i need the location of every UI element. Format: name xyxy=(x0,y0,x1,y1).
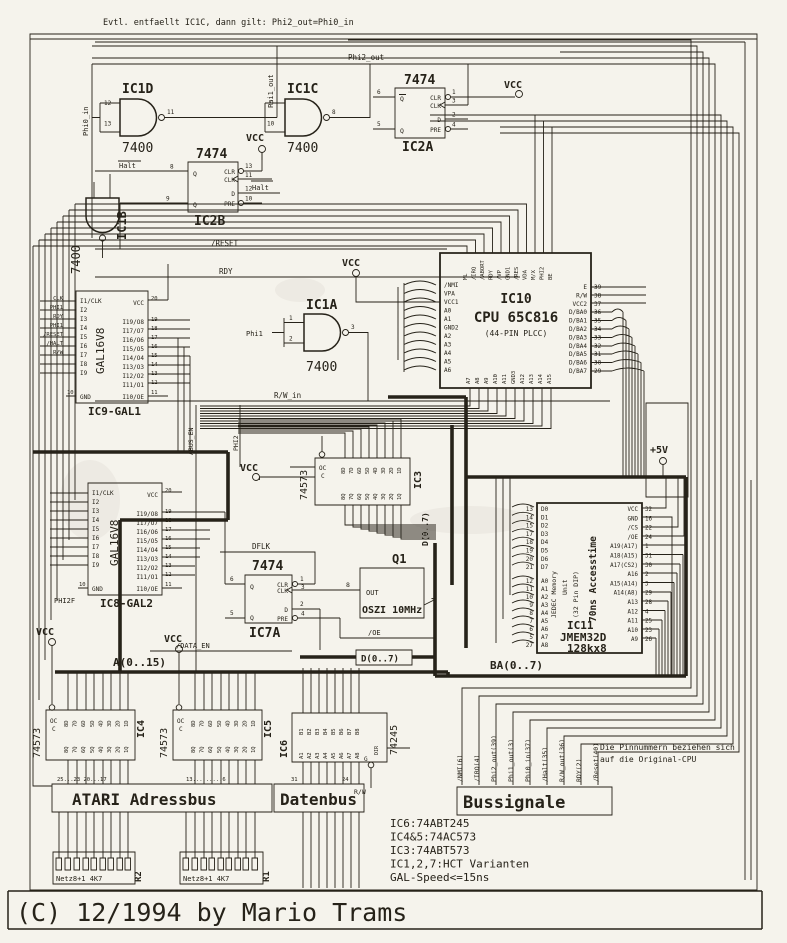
bussignale-signal-labels-5: /Halt(35) xyxy=(541,747,549,782)
gal9-left-pin-labels-2: I3 xyxy=(80,316,88,323)
cpu-bottom-pin-labels-0: A7 xyxy=(466,377,472,384)
mem-right-pin-nums-12: 25 xyxy=(645,619,652,625)
gal-oe: I10/OE xyxy=(136,586,158,593)
mem-a-pin-labels-7: A7 xyxy=(541,634,549,641)
vcc-terminal xyxy=(259,146,266,153)
gal9-right-pin-nums: 1918171615141312 xyxy=(151,317,158,386)
ic5-q-pins-3: 5Q xyxy=(217,746,223,753)
pin-num: 11 xyxy=(245,172,253,179)
cpu-right-pin-labels-3: D/BA0 xyxy=(569,309,587,316)
resistor-network-r2: Netz8+1 4K7 R2 xyxy=(53,852,144,884)
ic4-q-pins: 8Q7Q6Q5Q4Q3Q2Q1Q xyxy=(64,746,130,753)
cpu-right-pin-labels-9: D/BA6 xyxy=(569,360,587,367)
gal9-right-pin-labels-4: I14/O4 xyxy=(122,355,144,362)
ic3-q-pins-5: 3Q xyxy=(381,493,387,500)
mem-d-pin-labels-3: D3 xyxy=(541,531,549,538)
mem-right-pin-nums-4: 1 xyxy=(645,544,649,550)
ff-part: 7474 xyxy=(404,73,435,88)
gal8-right-pin-labels-1: I17/O7 xyxy=(136,520,158,527)
mem-right-pin-labels-6: A17(CS2) xyxy=(610,563,638,569)
gal9-input-signal-labels-2: RDY xyxy=(53,314,64,320)
latch-name: IC4 xyxy=(136,720,147,738)
latch-oc: OC xyxy=(177,718,185,725)
signal-reset: /RESET xyxy=(211,239,239,248)
mem-right-pin-nums-14: 26 xyxy=(645,637,652,643)
mem-right-pin-nums-2: 22 xyxy=(645,526,652,532)
ic6-b-pins-6: B7 xyxy=(347,728,353,735)
cpu-left-pin-labels-2: VCC1 xyxy=(444,299,459,306)
mem-right-pin-labels-14: A9 xyxy=(631,637,638,643)
cpu-name: IC10 xyxy=(500,292,531,307)
datenbus-pin-num-r: 24 xyxy=(342,777,349,783)
mem-d-pin-nums-5: 19 xyxy=(526,548,534,555)
gal8-right-pin-nums-6: 13 xyxy=(165,563,172,569)
cpu-bottom-pin-labels-8: A14 xyxy=(538,373,544,384)
mem-d-pin-nums-7: 21 xyxy=(526,564,534,571)
ic4-d-pins-0: 8D xyxy=(64,720,70,727)
mem-a-pin-labels-6: A6 xyxy=(541,626,549,633)
ic4-d-pins-2: 6D xyxy=(81,720,87,727)
signal-phi0-in: Phi0_in xyxy=(82,106,90,136)
cpu-left-pin-labels-4: A1 xyxy=(444,316,452,323)
signal-phi2: PHI2 xyxy=(232,435,240,451)
cpu-top-pin-labels-0: ML xyxy=(463,273,469,280)
ff-d-label: D xyxy=(437,117,441,124)
clr-bubble xyxy=(446,95,451,100)
wire-cpu-left-hops xyxy=(398,281,436,372)
mem-right-pin-nums-9: 29 xyxy=(645,591,652,597)
mem-a-pin-labels: A0A1A2A3A4A5A6A7A8 xyxy=(541,578,549,649)
adressbus-pin-nums2: 13.........6 xyxy=(186,777,226,783)
gal-vcc: VCC xyxy=(133,300,144,307)
ic4-q-pins-7: 1Q xyxy=(124,746,130,753)
cpu-left-pin-labels-3: A0 xyxy=(444,308,452,315)
ic4-q-pins-4: 4Q xyxy=(98,746,104,753)
ic6-a-pins-3: A4 xyxy=(323,752,329,759)
schematic-canvas: (C) 12/1994 by Mario Trams Evtl. entfael… xyxy=(0,0,787,943)
pin-num: 8 xyxy=(346,581,350,589)
rnet-elements xyxy=(183,858,258,870)
mem-d-pin-labels-4: D4 xyxy=(541,539,549,546)
gate-name: IC1C xyxy=(287,82,318,97)
bussignale-signal-labels-7: RDY(2) xyxy=(575,759,583,782)
bussignale-signal-labels-4: Phi0_in(37) xyxy=(524,739,532,782)
cpu-right-pin-labels-7: D/BA4 xyxy=(569,343,587,350)
cpu-right-pin-nums-0: 39 xyxy=(594,284,602,291)
adressbus-pin-nums: 25...23 20...17 xyxy=(57,777,107,783)
cpu-right-pin-nums-4: 35 xyxy=(594,318,602,325)
rnet-name: R1 xyxy=(262,871,272,882)
gal8-right-pin-nums-0: 19 xyxy=(165,509,172,515)
wire-left-bundle xyxy=(33,204,75,786)
ff-clk-label: CLK xyxy=(277,588,288,595)
gal8-right-pin-nums-3: 16 xyxy=(165,536,172,542)
cpu-right-pin-nums-1: 38 xyxy=(594,292,602,299)
gal8-right-pin-labels-4: I14/O4 xyxy=(136,547,158,554)
nand-gate-symbol xyxy=(120,99,157,136)
ic4-q-pins-1: 7Q xyxy=(73,746,79,753)
cpu-top-pin-labels-6: /RES xyxy=(514,267,520,280)
ic4-d-pins-7: 1D xyxy=(124,720,130,727)
mem-d-pin-labels: D0D1D2D3D4D5D6D7 xyxy=(541,506,549,571)
gate-part: 7400 xyxy=(122,141,153,156)
gate-part: 7400 xyxy=(69,245,83,274)
mem-desc-jedec: JEDEC Memory xyxy=(550,571,558,618)
gal-ic9: I1/CLKI2I3I4I5I6I7I8I9 I19/O8I17/O7I16/O… xyxy=(43,291,158,418)
gate-ic1a: IC1A 7400 1 2 3 Phi1 xyxy=(246,298,355,375)
part-notes-4: GAL-Speed<=15ns xyxy=(390,871,489,884)
wire-ic3 xyxy=(238,419,436,539)
gal9-left-pin-labels-3: I4 xyxy=(80,325,88,332)
latch-ic4: OC C 8D7D6D5D4D3D2D1D 8Q7Q6Q5Q4Q3Q2Q1Q 7… xyxy=(32,705,147,760)
gal8-right-pin-nums-5: 14 xyxy=(165,554,172,560)
ic5-q-pins-5: 3Q xyxy=(234,746,240,753)
bussignale-signal-labels-3: Phi1_out(3) xyxy=(507,739,515,782)
pin-number-note-1: auf die Original-CPU xyxy=(600,755,697,764)
ic5-d-pins-4: 4D xyxy=(225,720,231,727)
gal8-right-pin-labels-6: I12/O2 xyxy=(136,565,158,572)
signal-phi2f: PHI2F xyxy=(54,597,75,605)
gal9-right-pin-nums-2: 17 xyxy=(151,335,158,341)
ic3-d-pins-2: 6D xyxy=(357,467,363,474)
cpu-top-pin-labels: ML/IRQ/ABORTRDY/VPGND1/RESVDAM/XPHI2BE xyxy=(463,259,554,280)
gal9-left-pin-labels-8: I9 xyxy=(80,370,88,377)
ic5-d-pins-3: 5D xyxy=(217,720,223,727)
mem-d-pin-nums-4: 18 xyxy=(526,539,534,546)
cpu-bottom-pin-labels-9: A15 xyxy=(547,374,553,384)
ic5-q-pins-4: 4Q xyxy=(225,746,231,753)
ic6-a-pins-5: A6 xyxy=(339,752,345,759)
oc-bubble xyxy=(319,452,325,458)
gal-vcc: VCC xyxy=(147,492,158,499)
ic4-d-pins-3: 5D xyxy=(90,720,96,727)
ff-pre-label: PRE xyxy=(430,127,441,134)
gal8-right-pin-labels-0: I19/O8 xyxy=(136,511,158,518)
gal8-left-pin-labels-4: I5 xyxy=(92,526,100,533)
pin-num: 10 xyxy=(245,196,253,203)
supply-box: +5V xyxy=(646,403,688,497)
gal9-right-pin-nums-3: 16 xyxy=(151,344,158,350)
gate-ic1d: IC1D 7400 12 13 11 xyxy=(104,82,175,156)
signal-phi1-out: Phi1_out xyxy=(267,74,275,108)
inverter-bubble xyxy=(324,115,330,121)
part-notes-2: IC3:74ABT573 xyxy=(390,844,469,857)
gal-name: IC8-GAL2 xyxy=(100,597,153,610)
gal-gnd-pin: 10 xyxy=(79,582,86,588)
cpu-ic10: IC10 CPU 65C816 (44-PIN PLCC) ML/IRQ/ABO… xyxy=(440,253,602,388)
mem-right-pin-nums-13: 23 xyxy=(645,628,652,634)
ic4-d-pins-4: 4D xyxy=(98,720,104,727)
cpu-right-pin-labels-1: R/W xyxy=(576,292,587,299)
pre-bubble xyxy=(293,616,298,621)
latch-c: C xyxy=(321,473,325,480)
signal-halt-1: Halt xyxy=(119,162,136,170)
cpu-left-pin-labels-10: A6 xyxy=(444,367,452,374)
bus-label-d-vertical: D(0..7) xyxy=(421,512,430,546)
gal9-right-pin-nums-0: 19 xyxy=(151,317,158,323)
datenbus-pin-num-l: 31 xyxy=(291,777,298,783)
signal-abus-en: ABUS_EN xyxy=(187,428,195,455)
bus-label-ba: BA(0..7) xyxy=(490,659,543,672)
latch-oc: OC xyxy=(319,465,327,472)
gal9-input-signal-labels-6: R/W xyxy=(53,350,64,356)
ic6-a-pins-0: A1 xyxy=(299,752,305,759)
mem-d-pin-labels-6: D6 xyxy=(541,556,549,563)
gal-part: GAL16V8 xyxy=(108,520,121,566)
gal8-right-pin-nums-4: 15 xyxy=(165,545,172,551)
ff-q-label: Q xyxy=(250,583,254,591)
pin-num: 4 xyxy=(301,611,305,618)
pre-bubble xyxy=(446,127,451,132)
gal9-right-pin-labels-6: I12/O2 xyxy=(122,373,144,380)
gal-oe: I10/OE xyxy=(122,394,144,401)
cpu-right-pin-labels-10: D/BA7 xyxy=(569,368,587,375)
cpu-right-pin-labels-5: D/BA2 xyxy=(569,326,587,333)
mem-d-pin-nums-2: 15 xyxy=(526,523,534,530)
vcc-label: VCC xyxy=(36,627,54,638)
cpu-right-pin-nums: 3938373635343332313029 xyxy=(594,284,602,375)
mem-right-pin-labels-0: VCC xyxy=(628,507,639,513)
cpu-right-pin-nums-8: 31 xyxy=(594,351,602,358)
mem-right-pin-nums-7: 2 xyxy=(645,572,649,578)
rnet-elements xyxy=(56,858,131,870)
ff-clr-label: CLR xyxy=(430,95,441,102)
mem-a-pin-labels-4: A4 xyxy=(541,610,549,617)
gal-gnd: GND xyxy=(92,586,103,593)
wire-ic5 xyxy=(186,672,255,858)
cpu-bottom-pin-labels-7: A13 xyxy=(529,374,535,384)
oc-bubble xyxy=(176,705,182,711)
ic3-q-pins-1: 7Q xyxy=(349,493,355,500)
ic5-d-pins-6: 2D xyxy=(243,720,249,727)
mem-d-pin-labels-7: D7 xyxy=(541,564,549,571)
mem-a-pin-labels-8: A8 xyxy=(541,642,549,649)
top-note: Evtl. entfaellt IC1C, dann gilt: Phi2_ou… xyxy=(103,18,354,28)
latch-c: C xyxy=(52,726,56,733)
signal-rdy: RDY xyxy=(219,267,233,276)
pin-num: 1 xyxy=(289,315,293,322)
mem-d-pin-nums: 1314151718192021 xyxy=(526,506,534,571)
gate-name: IC1D xyxy=(122,82,153,97)
mem-a-pin-labels-2: A2 xyxy=(541,594,549,601)
gal-part: GAL16V8 xyxy=(94,328,107,374)
bus-label-d: D(0..7) xyxy=(361,655,399,665)
gal8-right-pin-nums: 1918171615141312 xyxy=(165,509,172,578)
cpu-bottom-pin-labels-1: A8 xyxy=(475,377,481,384)
mem-a-pin-labels-1: A1 xyxy=(541,586,549,593)
ic3-d-pins-3: 5D xyxy=(365,467,371,474)
cpu-right-pin-labels-0: E xyxy=(583,284,587,291)
pin-num: 5 xyxy=(230,610,234,617)
cpu-left-pin-labels-9: A5 xyxy=(444,359,452,366)
pin-num: 11 xyxy=(167,109,175,116)
signal-data-en: /DATA_EN xyxy=(176,642,210,650)
mem-d-pin-labels-2: D2 xyxy=(541,523,549,530)
gal9-right-pin-labels-2: I16/O6 xyxy=(122,337,144,344)
pin-num: 1 xyxy=(452,89,456,96)
plus5v-terminal xyxy=(660,458,667,465)
gal-oe-pin: 11 xyxy=(151,390,158,396)
mem-size: 128kx8 xyxy=(567,642,607,655)
part-notes: IC6:74ABT245IC4&5:74AC573IC3:74ABT573IC1… xyxy=(390,817,529,884)
pin-num: 8 xyxy=(332,109,336,116)
ic6-b-pins-1: B2 xyxy=(307,728,313,735)
cpu-bottom-pin-labels-3: A10 xyxy=(493,374,499,384)
memory-ic11: D0D1D2D3D4D5D6D7 1314151718192021 A0A1A2… xyxy=(526,503,653,655)
gal9-right-pin-nums-7: 12 xyxy=(151,380,158,386)
mem-a-pin-labels-5: A5 xyxy=(541,618,549,625)
pin-num: 6 xyxy=(377,89,381,96)
gal-oe-pin: 11 xyxy=(165,582,172,588)
gal9-input-signal-labels-0: CLK xyxy=(53,296,64,302)
gal9-left-pin-labels-6: I7 xyxy=(80,352,88,359)
clr-bubble xyxy=(293,582,298,587)
gal9-right-pin-nums-4: 15 xyxy=(151,353,158,359)
mem-a-pin-labels-3: A3 xyxy=(541,602,549,609)
vcc-label: VCC xyxy=(504,80,522,91)
vcc-terminal xyxy=(49,639,56,646)
ff-pre-label: PRE xyxy=(277,616,288,623)
gal8-right-pin-labels: I19/O8I17/O7I16/O6I15/O5I14/O4I13/O3I12/… xyxy=(136,511,158,581)
gal9-input-signal-labels: CLKPHI1RDYPHI1/RESET/HALTR/W xyxy=(43,296,64,356)
ff-clr-label: CLR xyxy=(224,169,235,176)
pin-number-note-0: Die Pinnummern beziehen sich xyxy=(600,743,735,752)
gal-name: IC9-GAL1 xyxy=(88,405,141,418)
adressbus-block: ATARI Adressbus 25...23 20...17 13......… xyxy=(52,777,272,812)
gal8-left-pin-labels-0: I1/CLK xyxy=(92,490,114,497)
pin-num: 3 xyxy=(452,98,456,105)
ic3-d-pins-0: 8D xyxy=(341,467,347,474)
gal-gnd-pin: 10 xyxy=(67,390,74,396)
ic3-d-pins-4: 4D xyxy=(373,467,379,474)
gal9-right-pin-labels-3: I15/O5 xyxy=(122,346,144,353)
cpu-top-pin-labels-2: /ABORT xyxy=(480,259,486,280)
gal9-right-pin-labels-1: I17/O7 xyxy=(122,328,144,335)
ic6-b-pins: B1B2B3B4B5B6B7B8 xyxy=(299,728,361,735)
mem-right-pin-nums-5: 31 xyxy=(645,554,652,560)
latch-ic5: OC C 8D7D6D5D4D3D2D1D 8Q7Q6Q5Q4Q3Q2Q1Q 7… xyxy=(159,705,274,760)
part-notes-1: IC4&5:74AC573 xyxy=(390,831,476,844)
mem-right-pin-labels-2: /CS xyxy=(628,526,639,532)
mem-a-pin-nums: 1211109876527 xyxy=(526,578,534,649)
clr-bubble xyxy=(239,169,244,174)
mem-right-pin-labels-12: A11 xyxy=(628,619,639,625)
cpu-top-pin-labels-1: /IRQ xyxy=(472,267,478,280)
vcc-label: VCC xyxy=(342,258,360,269)
ic6-b-pins-2: B3 xyxy=(315,728,321,735)
gal8-left-pin-labels-7: I8 xyxy=(92,553,100,560)
bussignale-signal-labels-1: /IRQ(4) xyxy=(473,755,481,782)
ic4-q-pins-2: 6Q xyxy=(81,746,87,753)
wire-ic2a xyxy=(373,64,515,129)
mem-a-pin-nums-5: 7 xyxy=(529,618,533,625)
cpu-top-pin-labels-4: /VP xyxy=(497,269,503,280)
gal-gnd: GND xyxy=(80,394,91,401)
mem-right-pin-nums-3: 24 xyxy=(645,535,652,541)
cpu-left-pin-labels: /NMIVPAVCC1A0A1GND2A2A3A4A5A6 xyxy=(444,282,459,374)
gate-part: 7400 xyxy=(287,141,318,156)
ic3-d-pins: 8D7D6D5D4D3D2D1D xyxy=(341,467,403,474)
ic3-q-pins: 8Q7Q6Q5Q4Q3Q2Q1Q xyxy=(341,493,403,500)
ic6-a-pins: A1A2A3A4A5A6A7A8 xyxy=(299,752,361,759)
latch-part: 74573 xyxy=(32,728,43,758)
ic6-b-pins-0: B1 xyxy=(299,728,305,735)
pin-num: 2 xyxy=(452,112,456,119)
pin-num: 3 xyxy=(351,324,355,331)
ic3-q-pins-4: 4Q xyxy=(373,493,379,500)
ic5-d-pins-0: 8D xyxy=(191,720,197,727)
cpu-title: CPU 65C816 xyxy=(474,310,558,326)
buffer-dir-label: DIR xyxy=(374,745,380,755)
mem-d-pin-nums-3: 17 xyxy=(526,531,534,538)
cpu-right-pin-nums-6: 33 xyxy=(594,334,602,341)
pin-num: 13 xyxy=(104,121,112,128)
ic5-q-pins-2: 6Q xyxy=(208,746,214,753)
bussignale-signal-labels-8: /Reset(40) xyxy=(592,743,600,782)
gal9-right-pin-labels-7: I11/O1 xyxy=(122,382,144,389)
datenbus-label: Datenbus xyxy=(280,790,357,809)
latch-name: IC5 xyxy=(263,720,274,738)
mem-desc-unit: Unit xyxy=(561,579,569,595)
ic5-q-pins-7: 1Q xyxy=(251,746,257,753)
cpu-top-pin-labels-5: GND1 xyxy=(506,267,512,280)
gal9-input-signal-labels-4: /RESET xyxy=(43,332,64,338)
cpu-right-pin-labels-2: VCC2 xyxy=(573,301,588,308)
ff-name: IC2B xyxy=(194,214,225,229)
ic6-b-pins-3: B4 xyxy=(323,728,329,735)
pin-num: 1 xyxy=(300,576,304,583)
latch-part: 74573 xyxy=(159,728,170,758)
ic3-d-pins-1: 7D xyxy=(349,467,355,474)
mem-right-pin-nums-6: 30 xyxy=(645,563,652,569)
ff-qbar-label: Q xyxy=(193,201,197,209)
ic3-q-pins-3: 5Q xyxy=(365,493,371,500)
ic4-d-pins: 8D7D6D5D4D3D2D1D xyxy=(64,720,130,727)
gal9-right-pin-nums-1: 18 xyxy=(151,326,158,332)
part-notes-3: IC1,2,7:HCT Varianten xyxy=(390,858,529,871)
mem-a-pin-nums-2: 10 xyxy=(526,594,534,601)
gal9-right-pin-labels-5: I13/O3 xyxy=(122,364,144,371)
signal-phi2-out: Phi2_out xyxy=(348,53,384,62)
gal-vcc-pin: 20 xyxy=(165,488,172,494)
ic4-d-pins-1: 7D xyxy=(73,720,79,727)
cpu-right-pin-labels-4: D/BA1 xyxy=(569,318,587,325)
cpu-left-pin-labels-8: A4 xyxy=(444,350,452,357)
mem-d-pin-labels-0: D0 xyxy=(541,506,549,513)
mem-d-pin-nums-6: 20 xyxy=(526,556,534,563)
osc-name: Q1 xyxy=(392,552,406,566)
mem-right-pin-labels: VCCGND/CS/OEA19(A17)A18(A15)A17(CS2)A16A… xyxy=(610,507,638,643)
ff-clk-label: CLK xyxy=(224,177,235,184)
ic5-q-pins-0: 8Q xyxy=(191,746,197,753)
gal9-input-signal-labels-1: PHI1 xyxy=(50,305,63,311)
gal9-input-signal-labels-5: /HALT xyxy=(46,341,63,347)
mem-a-pin-nums-6: 6 xyxy=(529,626,533,633)
cpu-right-pin-labels-8: D/BA5 xyxy=(569,351,587,358)
pre-bubble xyxy=(239,201,244,206)
vcc-terminal xyxy=(253,474,260,481)
cpu-right-pin-nums-3: 36 xyxy=(594,309,602,316)
g-bubble xyxy=(368,762,374,768)
rnet-name: R2 xyxy=(134,871,144,882)
pin-num: 3 xyxy=(301,584,305,591)
ff-d-label: D xyxy=(231,191,235,198)
buffer-name: IC6 xyxy=(279,740,290,758)
mem-right-pin-labels-11: A12 xyxy=(628,609,638,615)
bussignale-label: Bussignale xyxy=(463,793,565,813)
pin-num: 12 xyxy=(104,100,112,107)
cpu-left-pin-labels-6: A2 xyxy=(444,333,452,340)
